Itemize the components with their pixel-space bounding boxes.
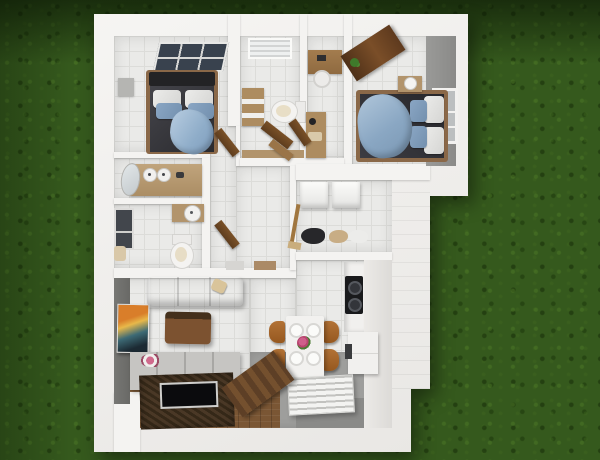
doormat [254,261,276,270]
round-sink [157,168,171,182]
dining-chair [269,321,285,343]
bed-headboard [149,72,215,86]
blue-pillow [410,126,427,148]
blue-sofa [147,277,243,306]
stool [313,70,331,88]
wall [344,14,352,164]
white-pillow [424,127,444,154]
appliance-slot [345,344,352,359]
dining-chair [323,321,339,343]
counter-item [176,172,184,178]
east-wall-band [392,180,430,389]
wall [228,14,240,126]
blue-pillow [410,100,427,122]
wc-window [114,208,134,250]
shelf-item [309,118,316,125]
bathroom-window-blinds [248,38,292,59]
plate [306,323,321,338]
base-cabinet [348,332,378,374]
plate [306,351,321,366]
doormat [226,261,244,270]
white-pillow [424,96,444,123]
laundry-pile-dark [301,228,325,244]
wall [296,252,392,260]
toilet [170,242,194,269]
sideboard-decor [141,354,167,367]
potted-plant [350,58,359,67]
plate [289,351,304,366]
round-sink [143,168,157,182]
burner [348,298,362,312]
floor-towel [114,246,126,261]
nightstand [118,78,134,96]
floor-plan-scene [0,0,600,460]
laundry-pile-white [349,230,368,243]
building-footprint [0,0,600,460]
coffee-table [165,312,212,345]
laundry-pile-beige [329,230,348,243]
table-lamp [404,77,417,90]
building-shadow-wrap [0,0,600,460]
slatted-door-mat [287,374,355,415]
dining-chair [323,349,339,371]
wall-clock [184,205,201,222]
ladder-towel-shelf [242,88,264,126]
wall [296,164,430,180]
desk-item [317,55,326,61]
wood-cabinet-strip [242,150,304,158]
burner [348,281,362,295]
hallway-floor-lower [236,166,290,270]
wall-art [117,304,150,354]
washing-machine [300,182,328,208]
dryer-machine [332,182,360,208]
flower-centerpiece [297,336,311,350]
skylight-window [153,42,229,72]
flat-tv-panel [160,381,219,409]
